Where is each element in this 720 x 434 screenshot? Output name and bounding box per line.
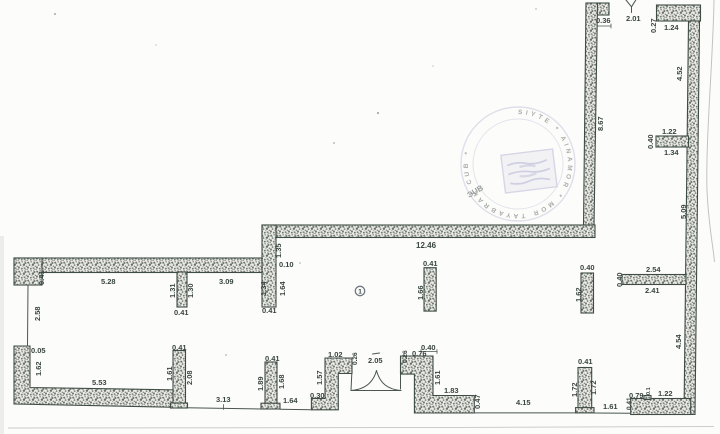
svg-text:1.62: 1.62	[574, 287, 583, 302]
svg-text:0.40: 0.40	[646, 134, 655, 149]
svg-text:1.62: 1.62	[34, 361, 43, 376]
svg-text:5.09: 5.09	[679, 204, 688, 219]
svg-text:0.41: 0.41	[262, 306, 277, 315]
svg-text:0.40: 0.40	[421, 343, 436, 352]
svg-text:2.41: 2.41	[645, 286, 660, 295]
svg-text:2.08: 2.08	[185, 370, 194, 385]
svg-text:1.64: 1.64	[283, 396, 298, 405]
svg-text:1.66: 1.66	[416, 285, 425, 300]
svg-text:1.89: 1.89	[256, 376, 265, 391]
svg-text:1.61: 1.61	[603, 402, 618, 411]
svg-text:1.83: 1.83	[444, 386, 459, 395]
svg-text:0.27: 0.27	[649, 18, 658, 33]
svg-text:1.61: 1.61	[165, 366, 174, 381]
svg-text:0.41: 0.41	[174, 308, 189, 317]
svg-text:3.09: 3.09	[219, 277, 234, 286]
svg-text:1.24: 1.24	[664, 23, 679, 32]
svg-text:2.01: 2.01	[626, 14, 641, 23]
svg-text:4.52: 4.52	[675, 66, 684, 81]
svg-text:1.68: 1.68	[277, 374, 286, 389]
svg-text:1.35: 1.35	[274, 243, 283, 258]
svg-text:0.41: 0.41	[37, 270, 46, 285]
svg-text:2.58: 2.58	[33, 306, 42, 321]
svg-text:4.15: 4.15	[516, 398, 531, 407]
svg-text:1.34: 1.34	[259, 281, 268, 296]
svg-text:5.53: 5.53	[92, 378, 107, 387]
svg-text:1.31: 1.31	[168, 283, 177, 298]
svg-text:0.26: 0.26	[402, 350, 409, 363]
svg-text:0.30: 0.30	[310, 391, 325, 400]
svg-text:1.02: 1.02	[328, 350, 343, 359]
svg-text:0.40: 0.40	[615, 272, 624, 287]
svg-text:12.46: 12.46	[416, 241, 437, 250]
svg-text:0.47: 0.47	[473, 394, 482, 409]
svg-text:3.13: 3.13	[216, 395, 231, 404]
svg-text:2.54: 2.54	[646, 265, 661, 274]
svg-text:1.22: 1.22	[662, 127, 677, 136]
svg-text:1.72: 1.72	[570, 382, 579, 397]
svg-text:1.30: 1.30	[186, 283, 195, 298]
svg-text:1: 1	[358, 289, 362, 296]
svg-text:8.67: 8.67	[596, 116, 605, 131]
svg-text:0.26: 0.26	[352, 352, 359, 365]
svg-text:1.64: 1.64	[278, 281, 287, 296]
svg-text:0.41: 0.41	[265, 354, 280, 363]
svg-text:0.1: 0.1	[646, 387, 652, 395]
svg-text:1.61: 1.61	[433, 370, 442, 385]
svg-text:1.34: 1.34	[664, 148, 679, 157]
svg-text:0.36: 0.36	[596, 16, 611, 25]
svg-text:0.41: 0.41	[626, 397, 633, 410]
svg-text:1.72: 1.72	[589, 380, 598, 395]
svg-text:5.28: 5.28	[101, 277, 116, 286]
svg-text:4.54: 4.54	[674, 334, 683, 349]
svg-text:0.41: 0.41	[578, 357, 593, 366]
svg-text:0.40: 0.40	[580, 263, 595, 272]
svg-text:1.57: 1.57	[315, 370, 324, 385]
svg-text:1.22: 1.22	[658, 389, 673, 398]
svg-text:0.10: 0.10	[279, 260, 294, 269]
svg-text:2.05: 2.05	[368, 356, 383, 365]
svg-text:0.41: 0.41	[172, 343, 187, 352]
svg-text:0.41: 0.41	[423, 259, 438, 268]
svg-text:0.05: 0.05	[31, 346, 46, 355]
